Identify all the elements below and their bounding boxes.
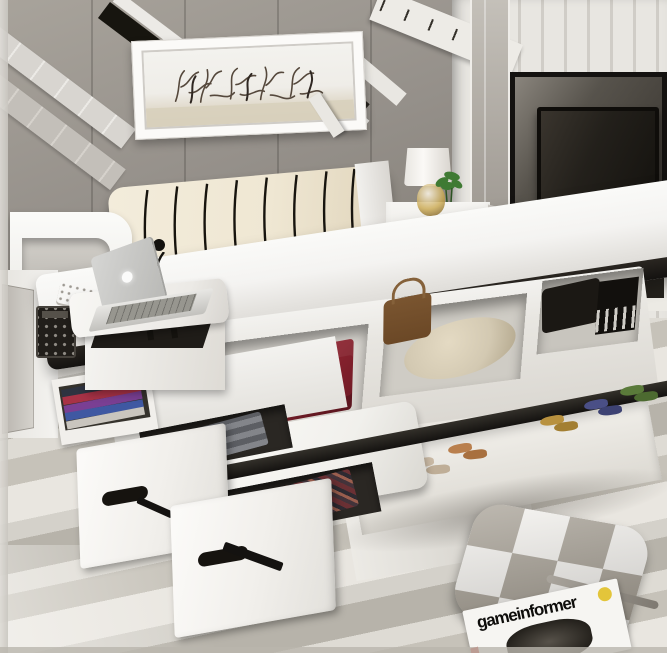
- photo-bottom-edge: [0, 647, 667, 653]
- storage-compartment: [537, 268, 644, 355]
- magazine-badge: [597, 586, 614, 603]
- apple-logo-icon: [121, 270, 134, 284]
- bedroom-photo: gameinformer: [0, 0, 667, 653]
- safe-display: [42, 311, 68, 318]
- bag-stripes: [595, 305, 636, 333]
- potted-plant: [432, 164, 466, 208]
- storage-compartment: [379, 293, 527, 397]
- photo-left-edge: [0, 0, 8, 653]
- black-bag: [542, 277, 600, 334]
- black-striped-bag: [595, 277, 639, 335]
